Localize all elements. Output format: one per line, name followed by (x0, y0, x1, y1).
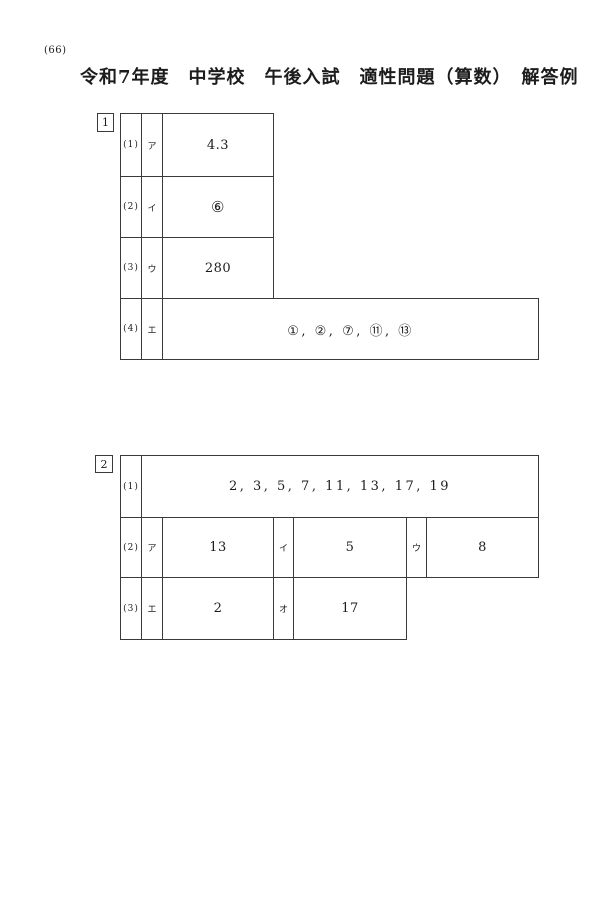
t2-r3-answer-2: 17 (293, 577, 407, 640)
t2-r2-kana-3: ウ (406, 517, 427, 578)
t2-r1-answer: 2, 3, 5, 7, 11, 13, 17, 19 (141, 455, 539, 518)
t1-r1-answer: 4.3 (162, 113, 274, 177)
t2-r2-answer-1: 13 (162, 517, 274, 578)
t1-r3-answer: 280 (162, 237, 274, 299)
t1-r3-label: (3) (120, 237, 142, 299)
t1-r1-kana: ア (141, 113, 163, 177)
t2-r3-label: (3) (120, 577, 142, 640)
section-2-number-box: 2 (95, 455, 113, 473)
t2-r2-answer-2: 5 (293, 517, 407, 578)
t1-r2-answer: ⑥ (162, 176, 274, 238)
t2-r2-label: (2) (120, 517, 142, 578)
t2-r3-kana-1: エ (141, 577, 163, 640)
t2-r3-kana-2: オ (273, 577, 294, 640)
t1-r4-label: (4) (120, 298, 142, 360)
t1-r3-kana: ウ (141, 237, 163, 299)
t2-r2-kana-2: イ (273, 517, 294, 578)
t2-r2-kana-1: ア (141, 517, 163, 578)
t1-r1-label: (1) (120, 113, 142, 177)
section-1-number-box: 1 (97, 113, 114, 132)
t2-r2-answer-3: 8 (426, 517, 539, 578)
t1-r4-answer: ①, ②, ⑦, ⑪, ⑬ (162, 298, 539, 360)
t1-r4-kana: エ (141, 298, 163, 360)
answer-sheet-page: (66) 令和7年度 中学校 午後入試 適性問題（算数） 解答例 1 (1) ア… (0, 0, 600, 900)
page-title: 令和7年度 中学校 午後入試 適性問題（算数） 解答例 (80, 63, 579, 89)
t2-r3-answer-1: 2 (162, 577, 274, 640)
page-number: (66) (44, 45, 67, 56)
t1-r2-kana: イ (141, 176, 163, 238)
t1-r2-label: (2) (120, 176, 142, 238)
t2-r1-label: (1) (120, 455, 142, 518)
